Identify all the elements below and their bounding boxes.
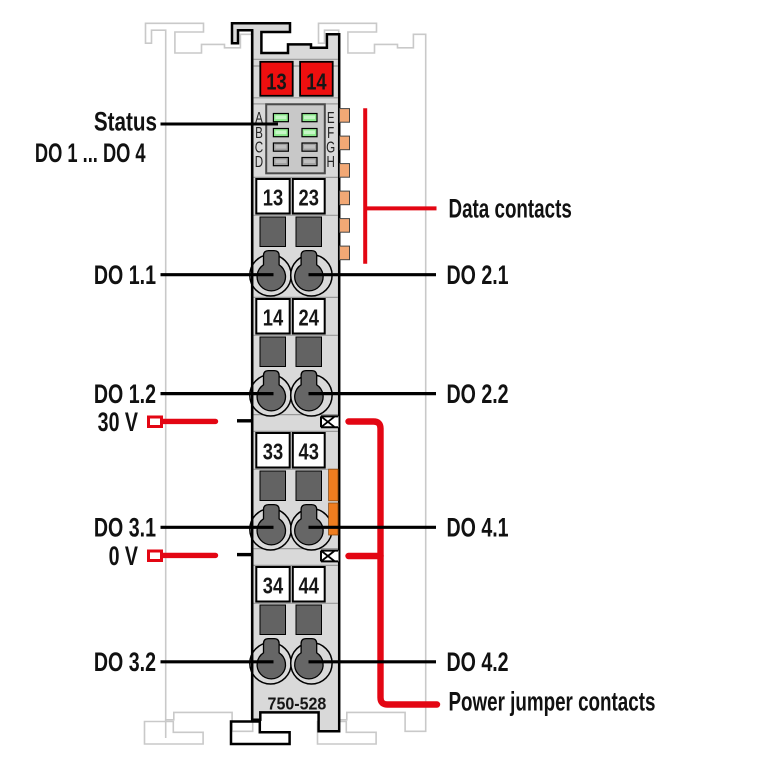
svg-text:D: D: [255, 154, 263, 171]
svg-text:23: 23: [299, 185, 319, 211]
svg-text:Data contacts: Data contacts: [449, 193, 572, 223]
svg-text:DO 3.2: DO 3.2: [94, 647, 156, 677]
svg-text:Status: Status: [94, 107, 157, 137]
svg-text:34: 34: [263, 573, 284, 599]
svg-text:DO 2.2: DO 2.2: [447, 379, 509, 409]
svg-text:0 V: 0 V: [109, 541, 139, 571]
svg-text:43: 43: [299, 439, 319, 465]
svg-text:24: 24: [299, 305, 320, 331]
svg-text:H: H: [327, 154, 335, 171]
svg-text:13: 13: [263, 185, 283, 211]
svg-text:14: 14: [263, 305, 284, 331]
svg-text:DO 2.1: DO 2.1: [447, 260, 509, 290]
svg-text:DO 1.1: DO 1.1: [94, 260, 156, 290]
svg-text:14: 14: [306, 69, 327, 95]
svg-text:33: 33: [263, 439, 283, 465]
svg-text:Power jumper contacts: Power jumper contacts: [449, 686, 656, 716]
svg-text:13: 13: [266, 69, 286, 95]
svg-text:DO 4.2: DO 4.2: [447, 647, 509, 677]
svg-text:DO 3.1: DO 3.1: [94, 513, 156, 543]
svg-text:DO 1.2: DO 1.2: [94, 379, 156, 409]
svg-text:30 V: 30 V: [98, 407, 139, 437]
svg-text:750-528: 750-528: [268, 694, 327, 714]
svg-text:DO 4.1: DO 4.1: [447, 513, 509, 543]
svg-text:44: 44: [299, 573, 320, 599]
svg-text:DO 1 ... DO 4: DO 1 ... DO 4: [35, 137, 146, 167]
